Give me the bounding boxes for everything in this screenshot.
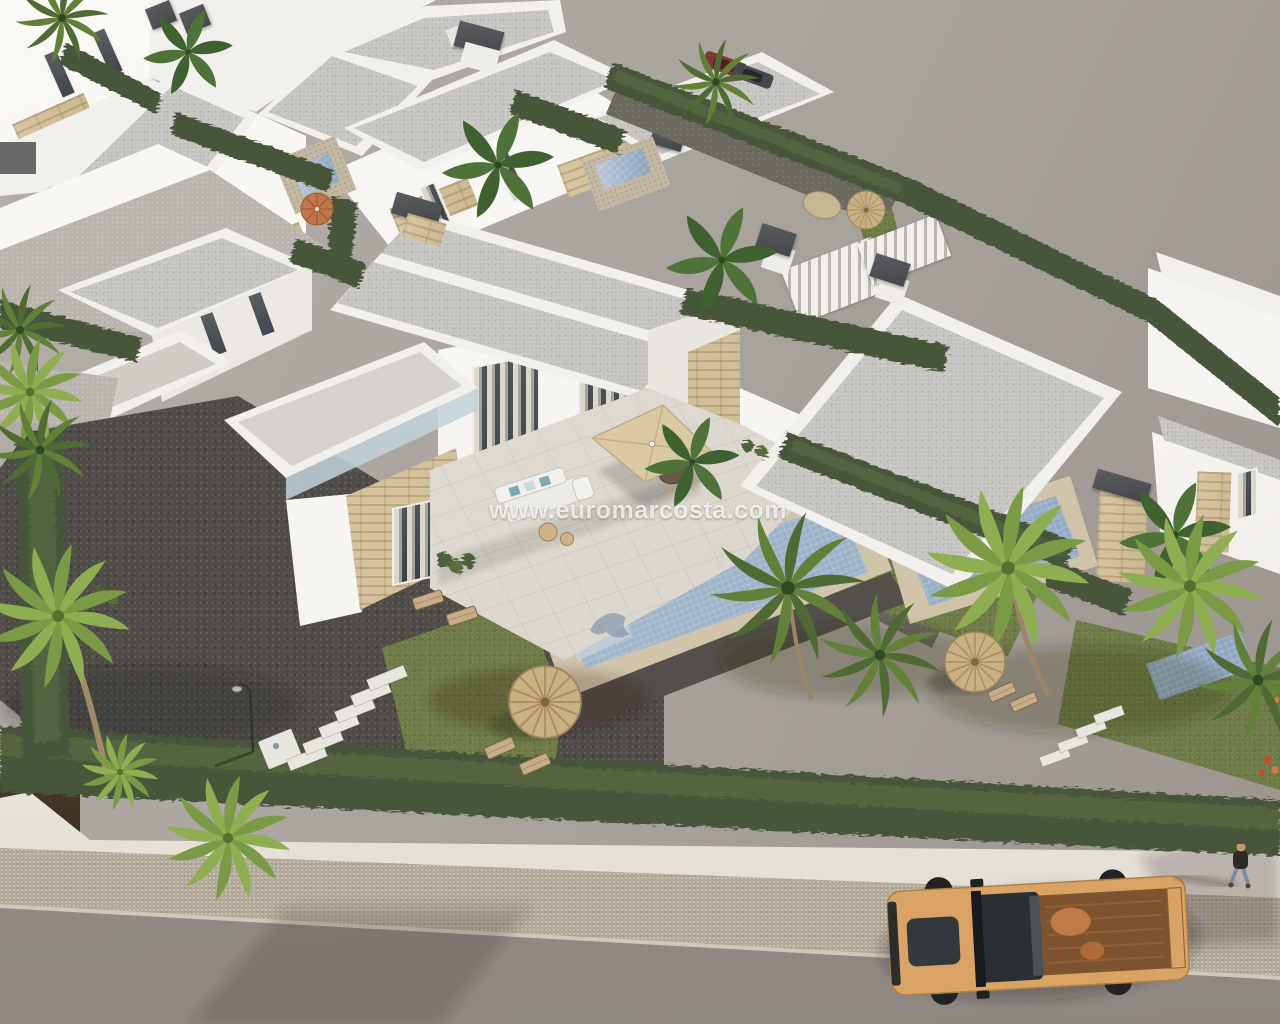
watermark-text: www.euromarcosta.com bbox=[489, 497, 787, 526]
canopy-pole bbox=[649, 441, 655, 447]
sun-lounger bbox=[446, 606, 478, 627]
banana-plant bbox=[442, 109, 554, 220]
coffee-table bbox=[561, 533, 574, 546]
truck-mirror bbox=[970, 879, 983, 888]
pool-mosaic-motif bbox=[590, 613, 630, 638]
sun-lounger bbox=[412, 590, 444, 611]
palm-tree bbox=[15, 0, 109, 65]
pickup-truck bbox=[876, 863, 1203, 1009]
banana-plant bbox=[143, 8, 233, 97]
lamp-head bbox=[232, 686, 242, 692]
aerial-render-image: www.euromarcosta.com bbox=[0, 0, 1280, 1024]
straw-parasol bbox=[847, 191, 885, 229]
drain-cover bbox=[273, 743, 279, 749]
road-shadow bbox=[190, 908, 530, 1024]
boulder bbox=[800, 188, 843, 223]
coffee-table bbox=[539, 523, 557, 541]
torso bbox=[1233, 851, 1248, 869]
truck-hood-scoop bbox=[906, 916, 961, 967]
orange-parasol bbox=[301, 193, 333, 225]
